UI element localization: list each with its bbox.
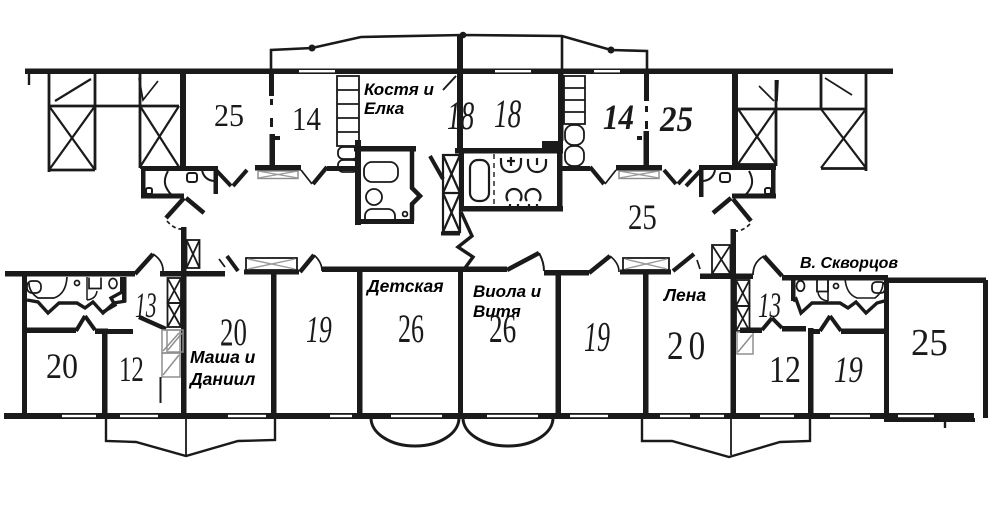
svg-text:14: 14 xyxy=(603,98,634,138)
svg-text:19: 19 xyxy=(584,314,610,361)
svg-text:12: 12 xyxy=(769,348,801,390)
svg-text:12: 12 xyxy=(119,348,144,389)
svg-text:20: 20 xyxy=(46,347,78,386)
svg-text:14: 14 xyxy=(292,100,321,138)
svg-text:19: 19 xyxy=(834,350,863,391)
svg-text:В. Скворцов: В. Скворцов xyxy=(800,255,898,272)
svg-text:Лена: Лена xyxy=(662,285,706,305)
svg-text:25: 25 xyxy=(214,97,244,133)
svg-text:Елка: Елка xyxy=(364,99,404,118)
svg-text:25: 25 xyxy=(659,100,693,140)
svg-text:26: 26 xyxy=(398,308,424,352)
svg-text:25: 25 xyxy=(628,198,657,238)
svg-text:18: 18 xyxy=(494,93,521,136)
svg-text:Костя и: Костя и xyxy=(364,80,434,99)
svg-text:Детская: Детская xyxy=(365,276,444,296)
svg-text:20: 20 xyxy=(667,323,710,368)
svg-text:18: 18 xyxy=(447,95,474,138)
svg-text:19: 19 xyxy=(306,309,332,351)
svg-text:Даниил: Даниил xyxy=(188,369,255,389)
svg-text:20: 20 xyxy=(220,311,247,354)
svg-text:Виола и: Виола и xyxy=(473,282,542,301)
svg-text:13: 13 xyxy=(135,287,157,326)
svg-text:26: 26 xyxy=(489,308,516,351)
svg-text:25: 25 xyxy=(911,323,948,365)
svg-text:13: 13 xyxy=(758,285,781,325)
